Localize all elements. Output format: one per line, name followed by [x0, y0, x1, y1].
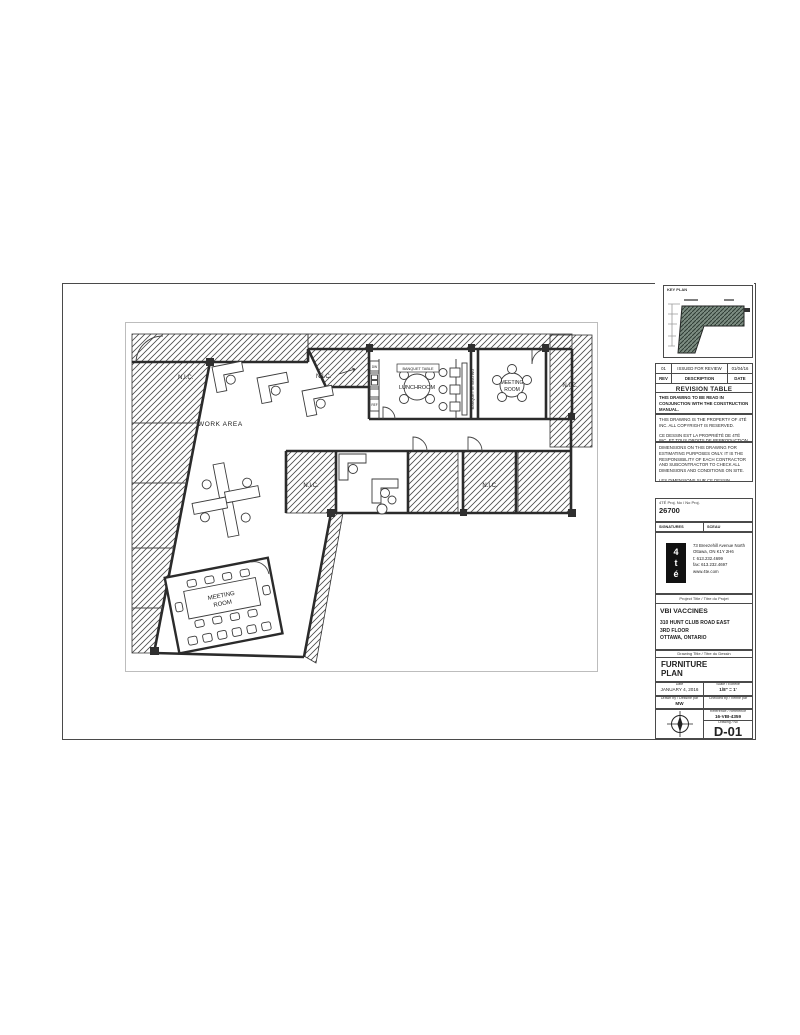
plan-label-banquette-seating: BANQUETTE SEATING — [471, 369, 475, 410]
project-number-value: 26700 — [656, 505, 752, 516]
plan-label-banquet-table: BANQUET TABLE — [402, 367, 433, 371]
title-block: KEY PLAN 01 ISSUED FOR REVIEW — [655, 283, 754, 739]
north-arrow-icon — [665, 710, 695, 738]
key-plan-label: KEY PLAN — [667, 288, 687, 292]
drawn-checked-row: Drawn by / Dessiné par MW Checked by / V… — [655, 696, 753, 709]
project-number-box: 4TÉ Proj. No / No Proj. 26700 — [655, 498, 753, 522]
seal-label: SCEAU — [704, 523, 752, 531]
banquet-table-tag: BANQUET TABLE — [397, 364, 439, 372]
plan-label-nic-room-a: N.I.C. — [303, 483, 319, 489]
drawing-sheet-page: MEETING ROOM N.I.C. N.I.C. N.I.C. N.I.C.… — [0, 0, 800, 1035]
note-text-3: CE DESSIN EST LA PROPRIÉTÉ DE 4TÉ INC. E… — [656, 431, 752, 442]
plan-label-nic-room-c: N.I.C. — [482, 483, 498, 489]
plan-label-meeting-room-top-2: ROOM — [504, 387, 520, 393]
plan-label-nic-right: N.I.C. — [562, 383, 578, 389]
plan-label-lunchroom: LUNCHROOM — [399, 385, 435, 391]
revision-header-date: DATE — [728, 374, 752, 383]
signatures-row: SIGNATURES SCEAU — [655, 522, 753, 532]
plan-label-work-area: WORK AREA — [198, 421, 243, 428]
note-text-4: DIMENSIONS ON THIS DRAWING FOR ESTIMATIN… — [656, 443, 752, 476]
project-address-line3: OTTAWA, ONTARIO — [660, 635, 748, 643]
revision-header-rev: REV — [656, 374, 672, 383]
drawing-title-line2: PLAN — [661, 670, 747, 679]
date-scale-row: Date JANUARY 4, 2016 Scale / Échelle 1/8… — [655, 682, 753, 696]
project-address-line2: 3RD FLOOR — [660, 628, 748, 636]
revision-row-description: ISSUED FOR REVIEW — [672, 364, 728, 373]
firm-box: 4té 73 Breezehill Avenue North Ottawa, O… — [655, 532, 753, 594]
note-text-1: THIS DRAWING TO BE READ IN CONJUNCTION W… — [656, 393, 752, 414]
drawing-title-label: Drawing Title / Titre du Dessin — [656, 651, 752, 658]
firm-web: www.4te.com — [693, 569, 745, 575]
key-plan-map — [664, 296, 752, 358]
workstations-pod — [186, 457, 267, 543]
floor-plan-svg: MEETING ROOM N.I.C. N.I.C. N.I.C. N.I.C.… — [126, 323, 597, 671]
note-text-2: THIS DRAWING IS THE PROPERTY OF 4TÉ INC.… — [656, 415, 752, 431]
plan-label-meeting-room-top-1: MEETING — [501, 380, 524, 386]
note-copyright: THIS DRAWING IS THE PROPERTY OF 4TÉ INC.… — [655, 414, 753, 442]
project-title-box: Project Title / Titre du Projet VBI VACC… — [655, 594, 753, 650]
project-address-line1: 310 HUNT CLUB ROAD EAST — [660, 620, 748, 628]
drawn-by-value: MW — [656, 701, 703, 706]
signatures-label: SIGNATURES — [656, 523, 704, 531]
note-dimensions: DIMENSIONS ON THIS DRAWING FOR ESTIMATIN… — [655, 442, 753, 482]
checked-by-label: Checked by / Vérifié par — [704, 697, 752, 701]
drawing-title-box: Drawing Title / Titre du Dessin FURNITUR… — [655, 650, 753, 682]
scale-value: 1/8" = 1' — [704, 687, 752, 692]
revision-row-date: 01/04/16 — [728, 364, 752, 373]
key-plan-box: KEY PLAN — [663, 285, 753, 358]
reference-value: 16-VBI-4359 — [704, 714, 752, 719]
project-title-label: Project Title / Titre du Projet — [656, 595, 752, 604]
plan-label-nic-topleft: N.I.C. — [178, 375, 194, 381]
4te-logo: 4té — [666, 543, 686, 583]
floor-plan: MEETING ROOM N.I.C. N.I.C. N.I.C. N.I.C.… — [125, 322, 598, 672]
drawing-number-value: D-01 — [704, 725, 752, 738]
note-conjunction: THIS DRAWING TO BE READ IN CONJUNCTION W… — [655, 392, 753, 414]
plan-label-nic-wedge: N.I.C. — [316, 374, 332, 380]
project-name: VBI VACCINES — [656, 604, 752, 615]
plan-label-dw: DW — [372, 365, 377, 369]
revision-table: 01 ISSUED FOR REVIEW 01/04/16 REV DESCRI… — [655, 363, 753, 393]
office-desks — [339, 454, 398, 514]
revision-header-description: DESCRIPTION — [672, 374, 728, 383]
date-value: JANUARY 4, 2016 — [656, 687, 703, 692]
plan-label-ref: REF — [371, 403, 377, 407]
bottom-row: Reference / Référence 16-VBI-4359 Drawin… — [655, 709, 753, 739]
meeting-room-bottom: MEETING ROOM — [165, 558, 283, 654]
note-text-5: LES DIMENSIONS SUR CE DESSIN SERVENT UNI… — [656, 476, 752, 482]
revision-row-number: 01 — [656, 364, 672, 373]
